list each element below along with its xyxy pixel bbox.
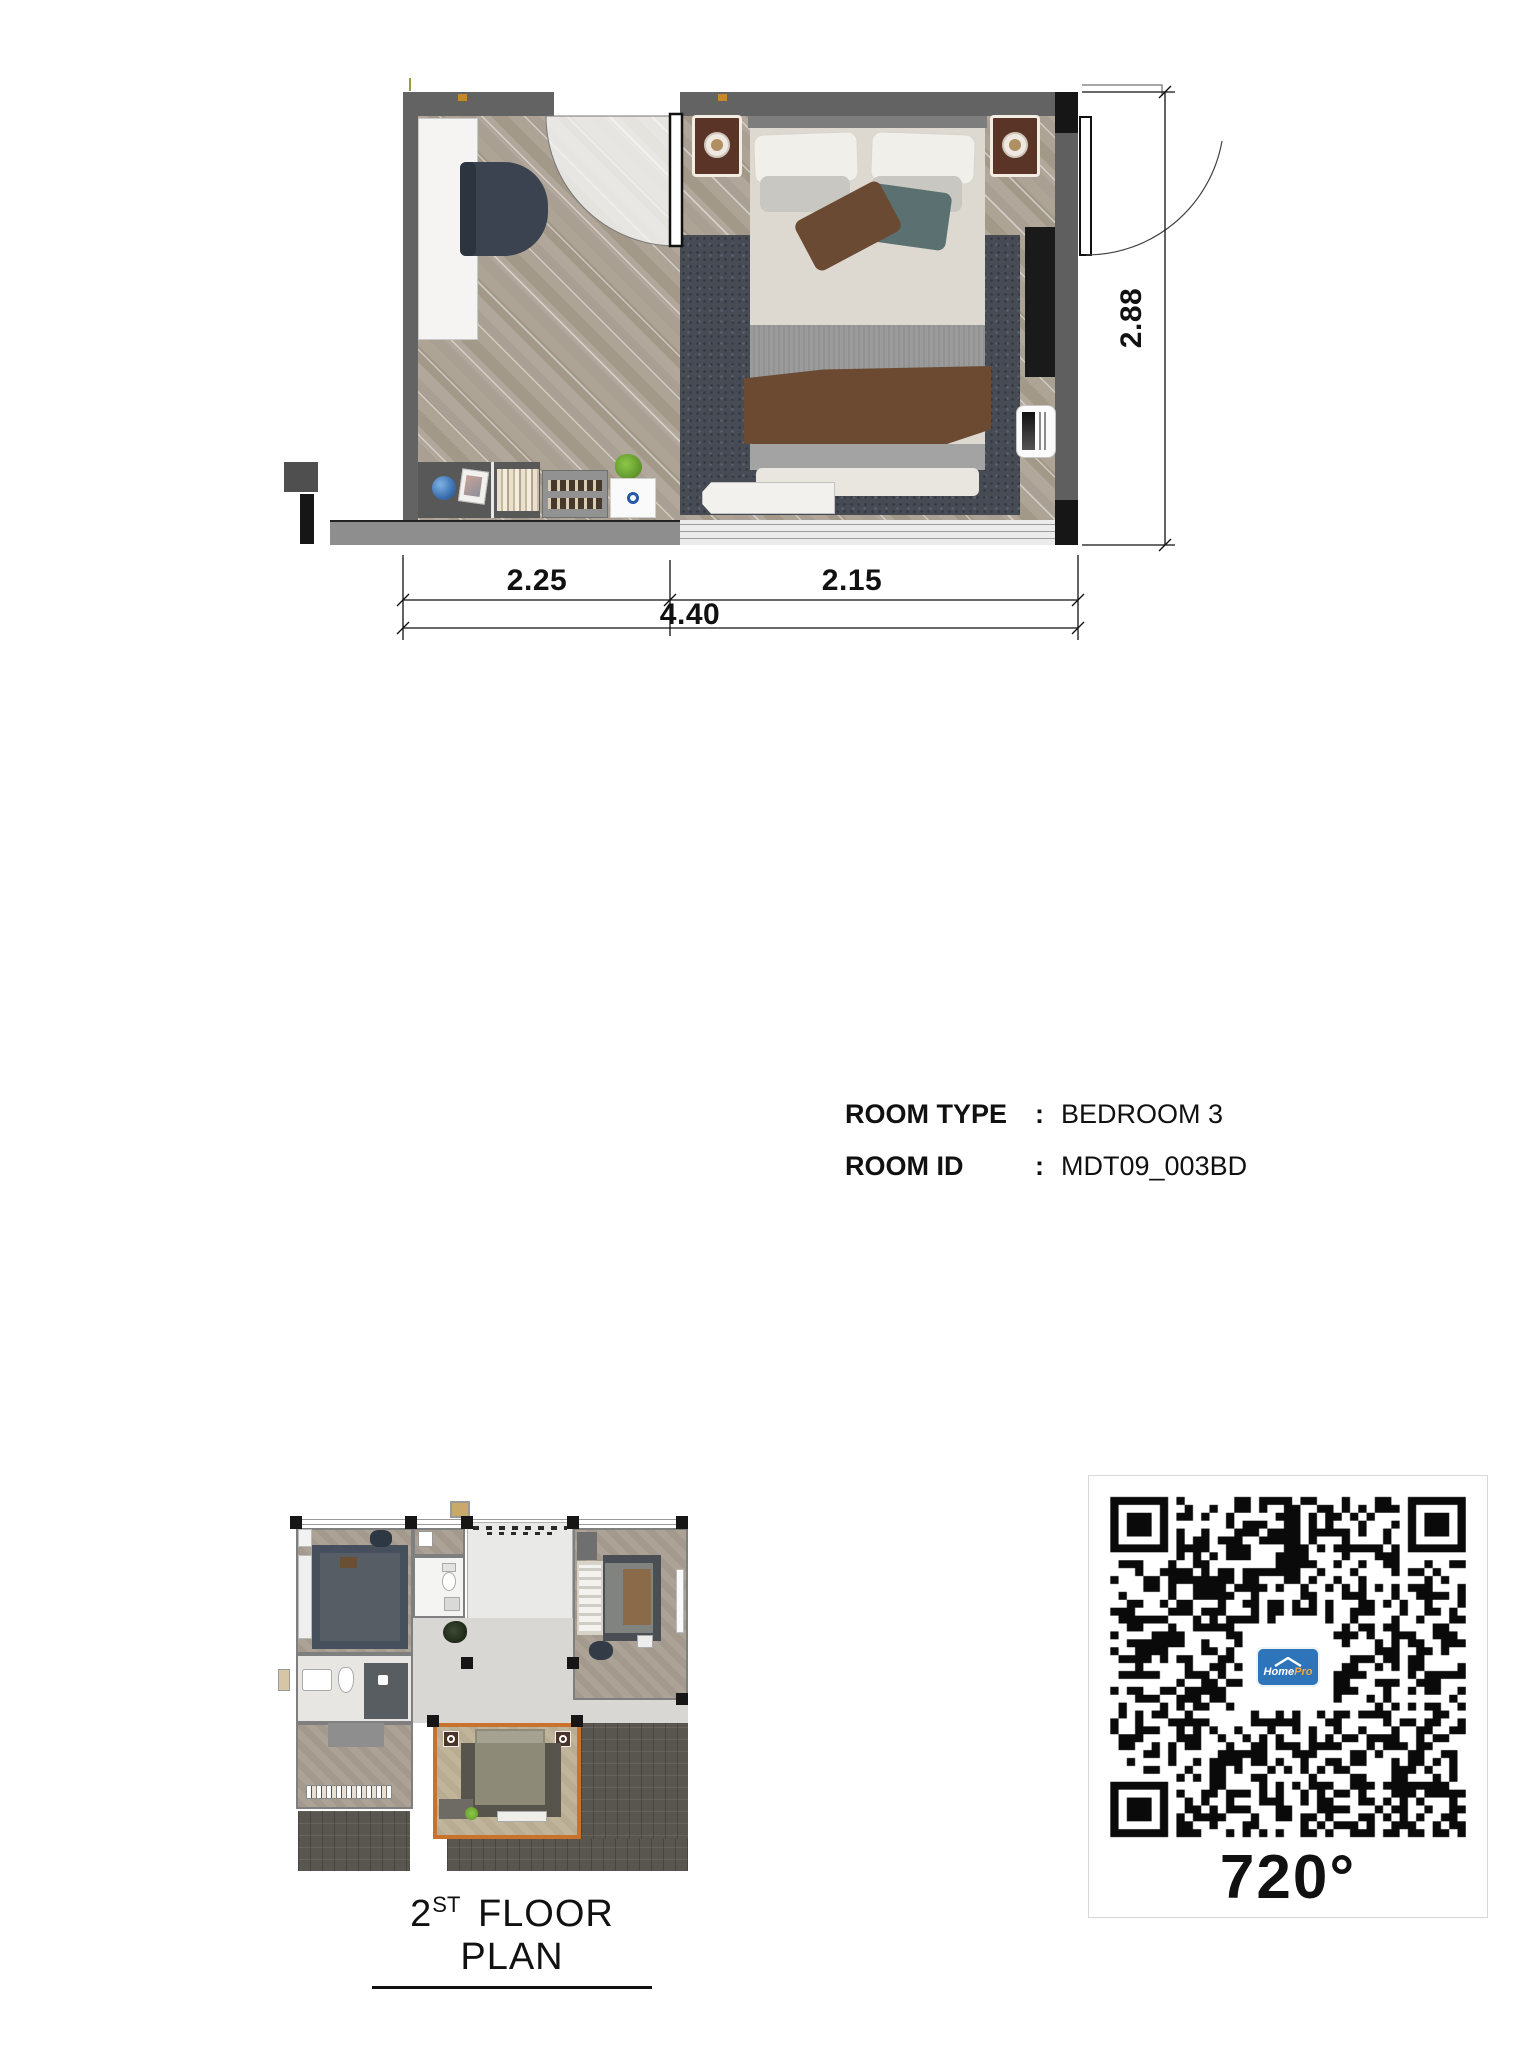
dresser	[542, 470, 608, 518]
mini-washer	[418, 1531, 433, 1547]
qr-panel: HomePro 720°	[1088, 1475, 1488, 1918]
globe-icon	[432, 476, 456, 500]
mini-switch-panel	[676, 1569, 684, 1633]
mini-bed1-pillow	[340, 1557, 357, 1568]
ac-unit-vent-icon	[1022, 412, 1035, 450]
room-type-row: ROOM TYPE : BEDROOM 3	[845, 1098, 1305, 1130]
room-id-row: ROOM ID : MDT09_003BD	[845, 1150, 1305, 1182]
mini-toilet2-icon	[338, 1667, 354, 1693]
dim-label-total: 4.40	[660, 598, 720, 632]
bed-headboard	[748, 116, 987, 128]
room-id-label: ROOM ID	[845, 1150, 1035, 1182]
ac-unit-lines-icon	[1039, 412, 1049, 450]
dim-label-height: 2.88	[1115, 288, 1149, 348]
wall-top-left	[403, 92, 554, 116]
mini-bed2-pillows	[579, 1565, 601, 1631]
mini-column	[461, 1657, 473, 1669]
room-type-value: BEDROOM 3	[1061, 1098, 1305, 1130]
wall-right	[1055, 92, 1078, 545]
mini-column	[567, 1516, 579, 1529]
qr-caption-720: 720°	[1089, 1842, 1487, 1913]
mini-column	[427, 1715, 439, 1727]
bench	[702, 482, 835, 514]
mini-column	[567, 1657, 579, 1669]
room-id-value: MDT09_003BD	[1061, 1150, 1305, 1182]
floorplan-caption: 2ST FLOOR PLAN	[372, 1892, 652, 1989]
dresser-drawer	[548, 498, 602, 509]
mini-b3-lamp-icon	[447, 1735, 455, 1743]
room-id-colon: :	[1035, 1150, 1061, 1182]
room-type-label: ROOM TYPE	[845, 1098, 1035, 1130]
wardrobe-panel	[1025, 227, 1055, 377]
mini-shelf-bl	[306, 1785, 392, 1799]
window-tick-icon	[718, 94, 727, 101]
mini-b3-pillows	[477, 1731, 543, 1743]
mini-column	[571, 1715, 583, 1727]
caption-superscript: ST	[432, 1892, 460, 1917]
mini-curtain-marks	[487, 1532, 553, 1535]
homepro-logo: HomePro	[1256, 1647, 1320, 1687]
mini-column	[676, 1693, 688, 1705]
mini-b3-lamp-icon	[559, 1735, 567, 1743]
plant-icon	[615, 454, 642, 479]
mini-cabinet2	[577, 1532, 597, 1560]
mini-bedroom-3-highlight	[433, 1723, 581, 1839]
railing-line	[1082, 85, 1162, 96]
mini-b3-plant-icon	[465, 1807, 478, 1820]
mini-column	[405, 1516, 417, 1529]
mini-floorplan	[290, 1517, 688, 1877]
mini-shower-head-icon	[378, 1675, 388, 1685]
column-bottom-right	[1055, 500, 1078, 545]
mini-toilet-icon	[442, 1563, 456, 1572]
mini-curtain-marks	[473, 1526, 567, 1530]
wall-stub-post	[300, 494, 314, 544]
mini-toilet-bowl-icon	[442, 1572, 456, 1591]
door-leaf-exterior	[1080, 117, 1091, 255]
room-info: ROOM TYPE : BEDROOM 3 ROOM ID : MDT09_00…	[845, 1098, 1305, 1202]
mini-plant-icon	[443, 1621, 467, 1643]
room-type-colon: :	[1035, 1098, 1061, 1130]
wall-bottom	[330, 520, 680, 545]
wall-stub	[284, 462, 318, 492]
window-tick-icon	[458, 94, 467, 101]
mini-column	[676, 1516, 688, 1529]
mini-door-tan	[278, 1669, 290, 1691]
mini-hallway-right	[573, 1700, 688, 1723]
mini-bed1	[320, 1553, 400, 1641]
mini-item-white	[637, 1635, 653, 1648]
bed-lower-band	[750, 444, 985, 470]
throw-blanket	[744, 366, 991, 454]
lamp-icon	[1002, 132, 1028, 158]
picture-frame-art	[464, 475, 483, 497]
mini-chair2	[589, 1641, 613, 1660]
lamp-icon	[704, 132, 730, 158]
wall-top-right	[680, 92, 1078, 116]
mini-sink-icon	[444, 1597, 460, 1611]
mini-bed2-blanket	[623, 1569, 651, 1625]
dresser-drawer	[548, 480, 602, 491]
mini-column	[290, 1516, 302, 1529]
mini-vanity	[302, 1669, 332, 1691]
dim-label-right: 2.15	[822, 564, 882, 598]
mini-terrace-bottom	[447, 1839, 688, 1871]
mini-shower	[364, 1663, 408, 1719]
wall-left	[403, 92, 418, 545]
mini-headboard1	[298, 1555, 312, 1639]
desk-chair-back	[460, 162, 476, 256]
mini-hallway	[413, 1618, 573, 1723]
mini-dresser1	[298, 1529, 312, 1547]
mini-column	[461, 1516, 473, 1529]
mini-chair1	[370, 1530, 392, 1547]
books-row	[497, 469, 539, 511]
homepro-logo-text: HomePro	[1264, 1667, 1313, 1678]
mini-mat-bl	[328, 1723, 384, 1747]
column-top-right	[1055, 92, 1078, 133]
door-swing-arc-exterior	[1086, 141, 1222, 255]
main-floorplan: 2.25 2.15 4.40 2.88	[260, 70, 1260, 660]
dim-label-left: 2.25	[507, 564, 567, 598]
mini-terrace-left	[298, 1811, 410, 1871]
shelf-divider	[491, 462, 494, 518]
floorplan-caption-text: 2ST FLOOR PLAN	[372, 1892, 652, 1989]
mini-b3-bench	[497, 1811, 547, 1822]
window-bottom	[680, 520, 1055, 545]
cabinet-ring-icon	[627, 492, 639, 504]
